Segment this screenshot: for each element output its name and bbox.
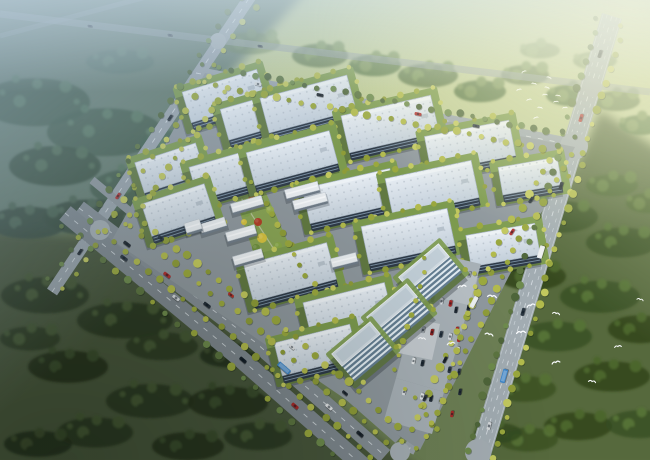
atmosphere-haze (0, 0, 650, 460)
aerial-scene (0, 0, 650, 460)
aerial-rendering-industrial-park (0, 0, 650, 460)
corner-vignette (0, 0, 650, 460)
